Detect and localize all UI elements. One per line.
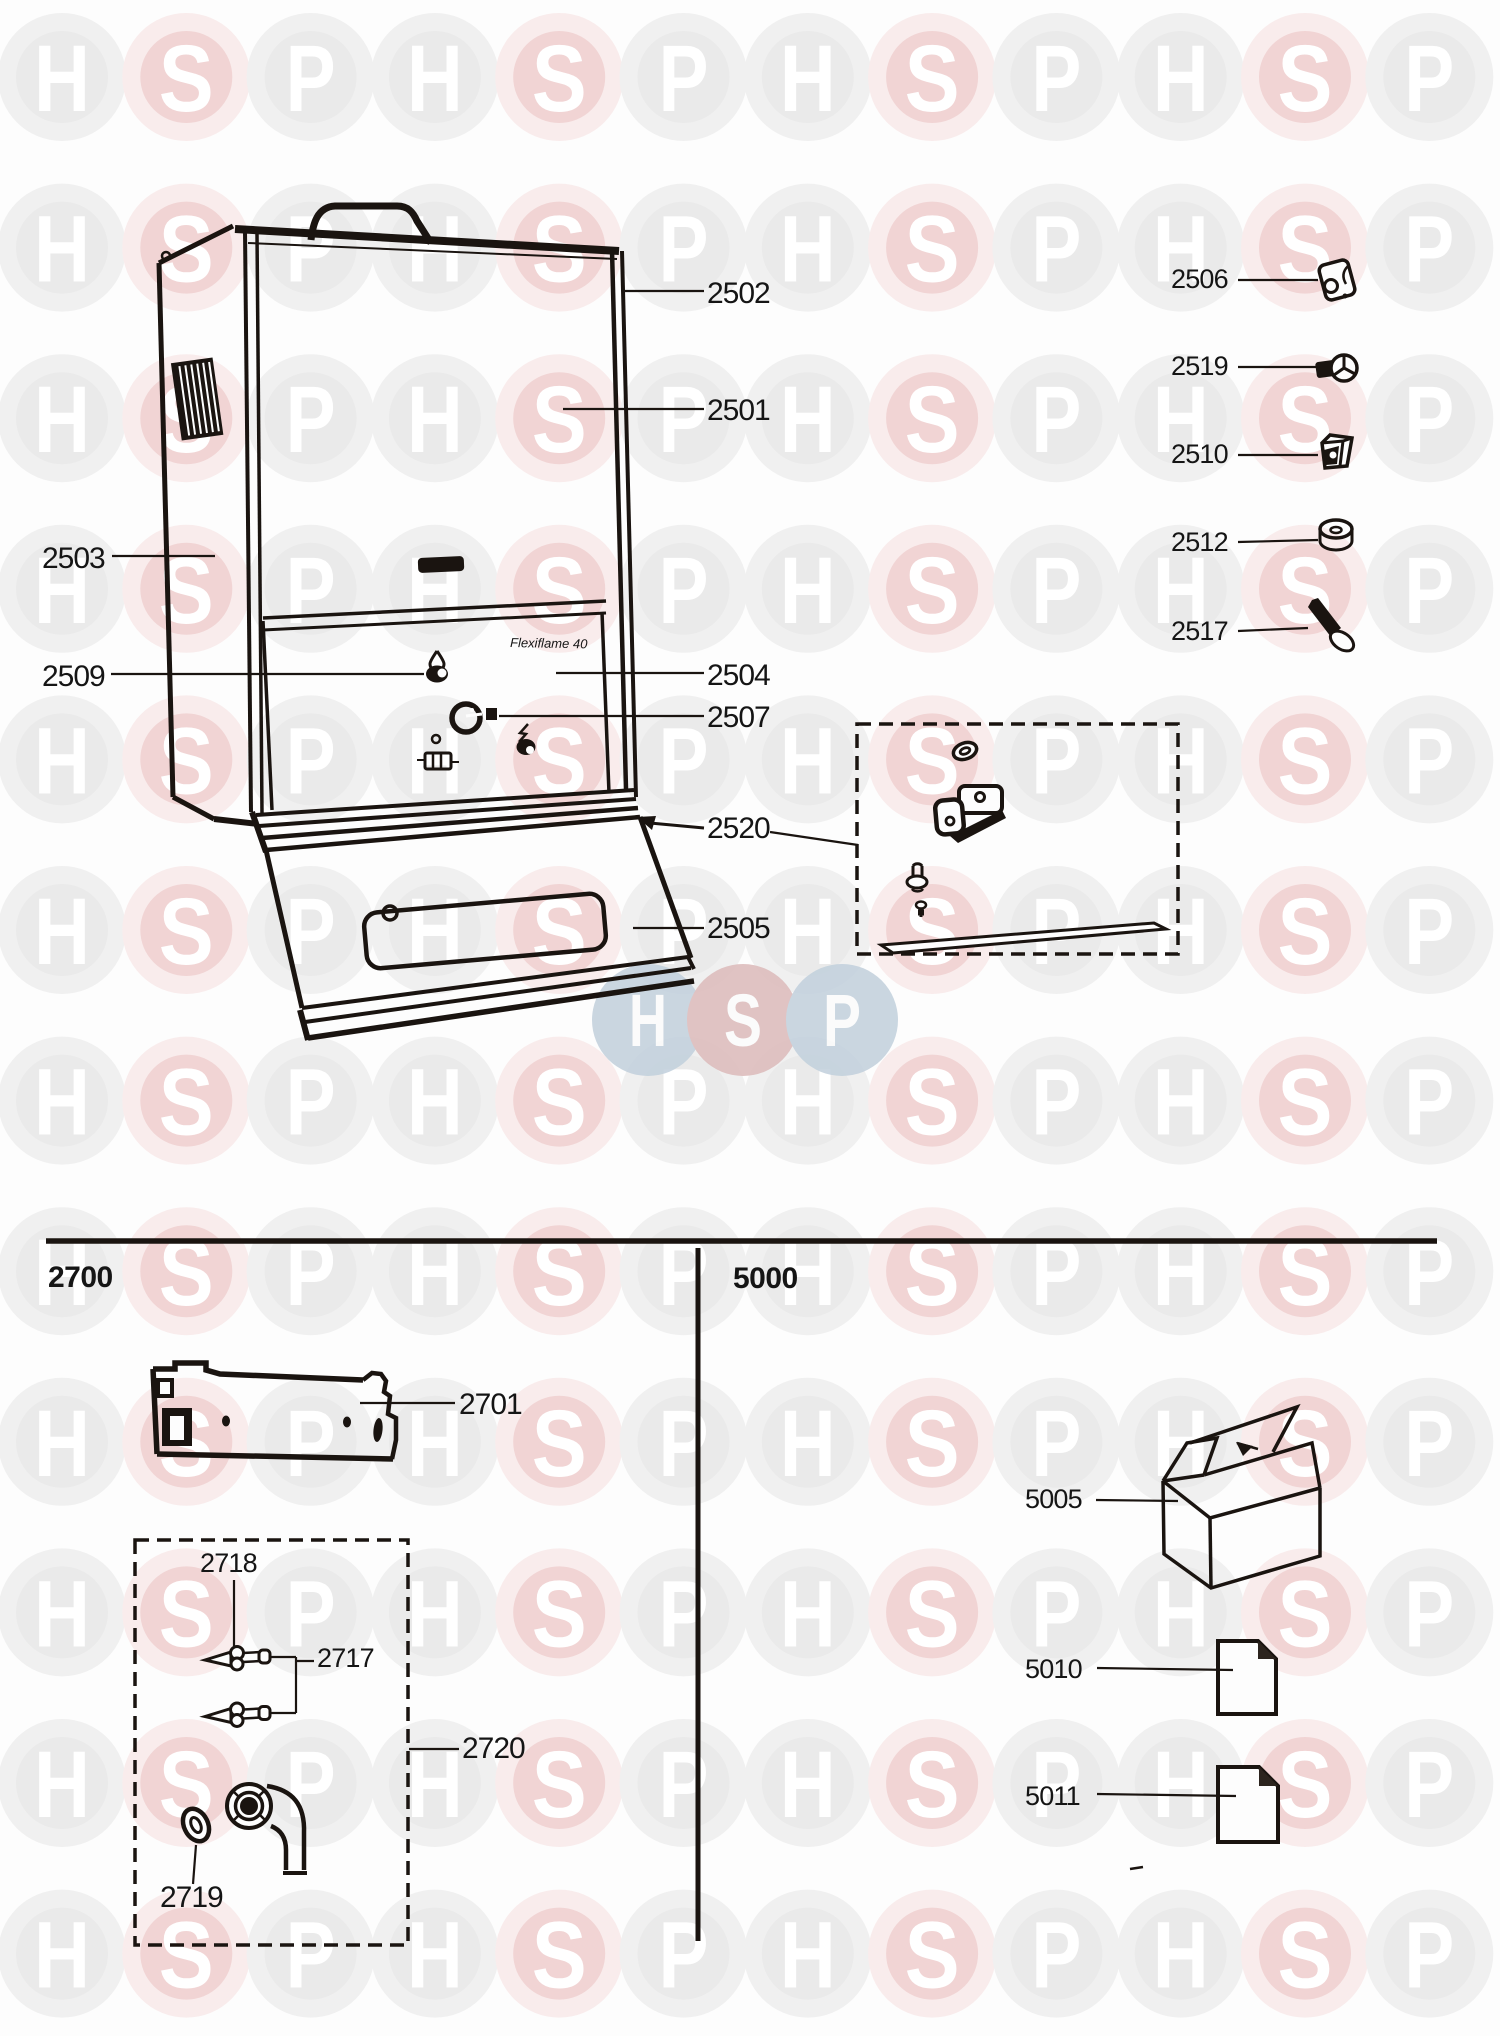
svg-text:2720: 2720 [462, 1732, 525, 1765]
svg-text:P: P [659, 708, 709, 814]
svg-text:2501: 2501 [707, 394, 770, 427]
svg-text:S: S [532, 26, 587, 132]
svg-text:S: S [905, 538, 960, 644]
svg-text:S: S [532, 1391, 587, 1497]
svg-text:P: P [286, 1050, 336, 1156]
svg-text:H: H [780, 367, 836, 473]
svg-text:2719: 2719 [160, 1881, 223, 1914]
svg-text:S: S [159, 26, 214, 132]
svg-text:H: H [1153, 1050, 1209, 1156]
svg-text:2717: 2717 [317, 1643, 374, 1673]
svg-text:S: S [905, 367, 960, 473]
svg-text:2517: 2517 [1171, 616, 1228, 646]
svg-text:P: P [659, 538, 709, 644]
svg-text:P: P [1031, 26, 1081, 132]
svg-text:S: S [1278, 708, 1333, 814]
svg-text:2701: 2701 [459, 1388, 522, 1421]
svg-text:2506: 2506 [1171, 264, 1228, 294]
svg-text:P: P [1404, 1903, 1454, 2009]
svg-text:S: S [1278, 26, 1333, 132]
svg-text:H: H [780, 197, 836, 303]
svg-text:2503: 2503 [42, 542, 105, 575]
svg-text:H: H [407, 879, 463, 985]
svg-text:S: S [532, 1732, 587, 1838]
svg-text:S: S [159, 1220, 214, 1326]
svg-text:H: H [1153, 1903, 1209, 2009]
svg-text:2505: 2505 [707, 912, 770, 945]
svg-text:S: S [532, 1903, 587, 2009]
svg-text:P: P [1404, 879, 1454, 985]
svg-text:P: P [659, 367, 709, 473]
svg-text:P: P [1031, 538, 1081, 644]
svg-text:S: S [905, 1220, 960, 1326]
svg-text:H: H [780, 1732, 836, 1838]
svg-text:S: S [1278, 1050, 1333, 1156]
svg-text:P: P [1031, 1903, 1081, 2009]
svg-text:H: H [1153, 708, 1209, 814]
svg-text:S: S [1278, 1220, 1333, 1326]
svg-text:P: P [659, 1561, 709, 1667]
svg-text:2519: 2519 [1171, 351, 1228, 381]
svg-text:2510: 2510 [1171, 439, 1228, 469]
svg-text:H: H [34, 26, 90, 132]
svg-text:P: P [286, 26, 336, 132]
svg-text:S: S [905, 1903, 960, 2009]
svg-text:P: P [1404, 1561, 1454, 1667]
svg-text:P: P [286, 1732, 336, 1838]
svg-text:H: H [407, 538, 463, 644]
svg-text:P: P [1404, 1732, 1454, 1838]
svg-text:5011: 5011 [1025, 1781, 1080, 1811]
svg-text:S: S [724, 979, 762, 1062]
svg-text:S: S [532, 367, 587, 473]
svg-text:H: H [1153, 1561, 1209, 1667]
svg-text:H: H [34, 879, 90, 985]
svg-text:H: H [34, 1561, 90, 1667]
svg-text:H: H [780, 708, 836, 814]
svg-text:P: P [659, 1732, 709, 1838]
svg-text:P: P [1031, 1391, 1081, 1497]
svg-text:H: H [407, 1561, 463, 1667]
svg-text:P: P [286, 708, 336, 814]
svg-text:H: H [1153, 879, 1209, 985]
svg-text:P: P [286, 1391, 336, 1497]
svg-text:P: P [286, 367, 336, 473]
svg-text:H: H [780, 1391, 836, 1497]
svg-text:H: H [407, 1220, 463, 1326]
svg-text:H: H [34, 1732, 90, 1838]
svg-text:H: H [34, 1050, 90, 1156]
svg-text:5010: 5010 [1025, 1654, 1082, 1684]
svg-text:P: P [1404, 1050, 1454, 1156]
svg-text:P: P [286, 1220, 336, 1326]
svg-text:H: H [1153, 1220, 1209, 1326]
svg-text:S: S [905, 1050, 960, 1156]
svg-text:P: P [1031, 1220, 1081, 1326]
svg-text:5005: 5005 [1025, 1484, 1082, 1514]
svg-text:H: H [780, 1903, 836, 2009]
svg-text:S: S [159, 879, 214, 985]
svg-text:H: H [1153, 1732, 1209, 1838]
svg-text:S: S [1278, 1903, 1333, 2009]
svg-text:S: S [1278, 879, 1333, 985]
svg-text:S: S [159, 1903, 214, 2009]
svg-text:S: S [905, 26, 960, 132]
svg-text:2520: 2520 [707, 812, 770, 845]
svg-text:S: S [532, 1050, 587, 1156]
svg-text:H: H [34, 1391, 90, 1497]
svg-text:H: H [407, 26, 463, 132]
svg-text:2512: 2512 [1171, 527, 1228, 557]
svg-text:S: S [905, 1732, 960, 1838]
svg-text:P: P [286, 1903, 336, 2009]
svg-text:2504: 2504 [707, 659, 770, 692]
svg-text:H: H [34, 708, 90, 814]
svg-text:S: S [532, 1561, 587, 1667]
svg-text:H: H [407, 367, 463, 473]
svg-text:P: P [1404, 538, 1454, 644]
svg-text:P: P [823, 979, 861, 1062]
svg-text:H: H [1153, 26, 1209, 132]
svg-text:H: H [407, 1391, 463, 1497]
svg-text:S: S [159, 1050, 214, 1156]
svg-text:P: P [659, 1903, 709, 2009]
svg-text:S: S [905, 879, 960, 985]
svg-text:S: S [1278, 1561, 1333, 1667]
svg-text:S: S [532, 708, 587, 814]
svg-text:P: P [659, 197, 709, 303]
svg-text:H: H [34, 367, 90, 473]
svg-text:H: H [34, 197, 90, 303]
svg-text:S: S [905, 1391, 960, 1497]
svg-text:2507: 2507 [707, 701, 770, 734]
svg-text:P: P [659, 1391, 709, 1497]
svg-text:5000: 5000 [733, 1262, 798, 1295]
svg-text:P: P [1404, 1220, 1454, 1326]
svg-text:H: H [407, 1050, 463, 1156]
svg-text:H: H [780, 1561, 836, 1667]
svg-text:H: H [780, 26, 836, 132]
svg-text:S: S [532, 1220, 587, 1326]
svg-text:P: P [1031, 197, 1081, 303]
svg-text:P: P [659, 26, 709, 132]
svg-text:2502: 2502 [707, 277, 770, 310]
svg-text:H: H [1153, 1391, 1209, 1497]
svg-text:P: P [1031, 1050, 1081, 1156]
svg-text:S: S [159, 708, 214, 814]
svg-text:2509: 2509 [42, 660, 105, 693]
svg-text:H: H [34, 1903, 90, 2009]
svg-text:S: S [905, 197, 960, 303]
svg-text:P: P [1404, 197, 1454, 303]
svg-text:H: H [407, 1903, 463, 2009]
svg-text:S: S [532, 538, 587, 644]
svg-text:P: P [659, 1220, 709, 1326]
svg-text:Flexiflame 40: Flexiflame 40 [510, 635, 588, 651]
svg-text:2718: 2718 [200, 1548, 257, 1578]
svg-text:P: P [1031, 367, 1081, 473]
svg-text:P: P [1031, 1561, 1081, 1667]
svg-text:P: P [286, 197, 336, 303]
svg-text:H: H [780, 538, 836, 644]
svg-text:P: P [1404, 708, 1454, 814]
svg-text:S: S [1278, 1732, 1333, 1838]
svg-text:P: P [1404, 26, 1454, 132]
svg-text:P: P [1404, 1391, 1454, 1497]
svg-text:P: P [1404, 367, 1454, 473]
svg-text:S: S [905, 1561, 960, 1667]
svg-text:2700: 2700 [48, 1261, 113, 1294]
